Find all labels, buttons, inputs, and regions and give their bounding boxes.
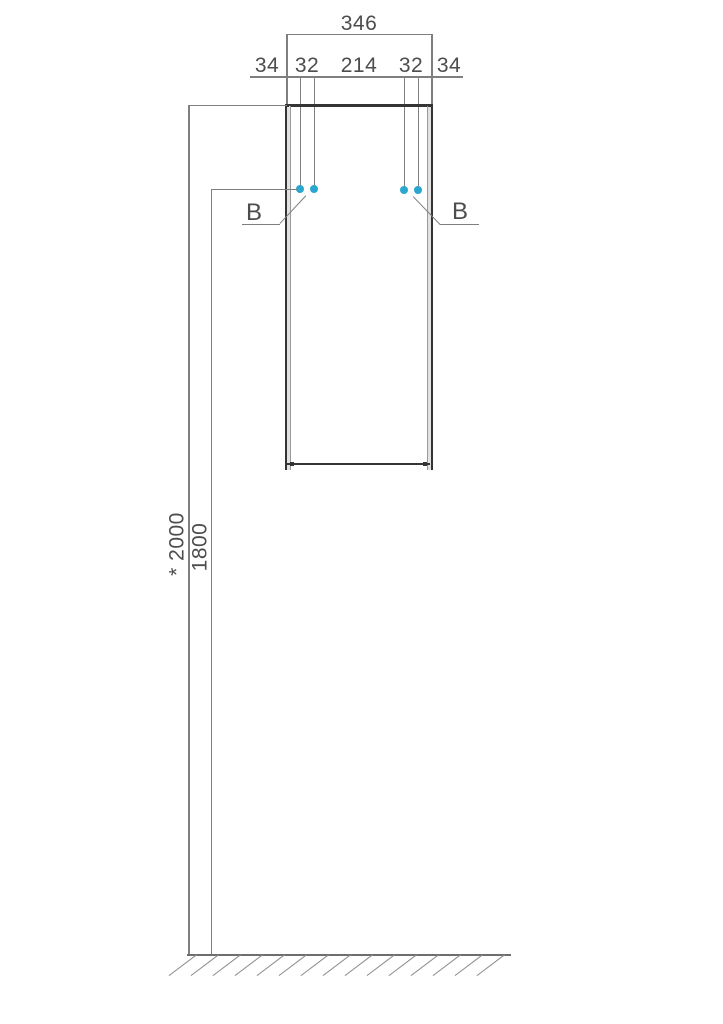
dim-2000-top-connector [189, 105, 287, 106]
dim-segment-32-left-label: 32 [287, 55, 327, 76]
dim-line-segments [250, 76, 463, 77]
cabinet-top-edge [285, 104, 433, 107]
dim-total-width-label: 346 [329, 13, 389, 34]
cabinet-bottom-edge [287, 463, 430, 465]
mount-point-dot [414, 186, 422, 194]
mount-point-dot [400, 186, 408, 194]
dim-1800-label: 1800 [190, 523, 211, 572]
hole-extension-line-2 [314, 77, 315, 185]
callout-b-right-label: B [446, 200, 474, 224]
corner-tick-top-right [428, 104, 432, 108]
corner-tick-bottom-right [423, 462, 427, 466]
hole-extension-line-3 [404, 77, 405, 186]
corner-tick-bottom-left [290, 462, 294, 466]
dim-1800-top-connector [211, 189, 297, 190]
callout-b-right-shelf-line [440, 224, 479, 225]
hole-extension-line-1 [300, 77, 301, 185]
dim-segment-32-right-label: 32 [391, 55, 431, 76]
dim-segment-34-right-label: 34 [429, 55, 469, 76]
hole-extension-line-4 [418, 77, 419, 186]
mount-point-dot [296, 185, 304, 193]
dim-segment-34-left-label: 34 [247, 55, 287, 76]
dim-line-total-width [287, 34, 432, 35]
dim-2000-label: * 2000 [167, 512, 188, 576]
callout-b-left-label: B [240, 201, 268, 225]
cabinet-right-side-panel [427, 106, 433, 470]
dim-segment-214-label: 214 [329, 55, 389, 76]
callout-b-left-leader [280, 196, 307, 225]
cabinet-left-side-panel [285, 106, 291, 470]
callout-b-left-shelf-line [242, 224, 280, 225]
dim-1800-vertical-line [211, 189, 212, 955]
floor-hatch-stroke [477, 954, 506, 976]
mount-point-dot [310, 185, 318, 193]
drawing-canvas: 346 34 32 214 32 34 B B * 2000 1800 [0, 0, 723, 1024]
